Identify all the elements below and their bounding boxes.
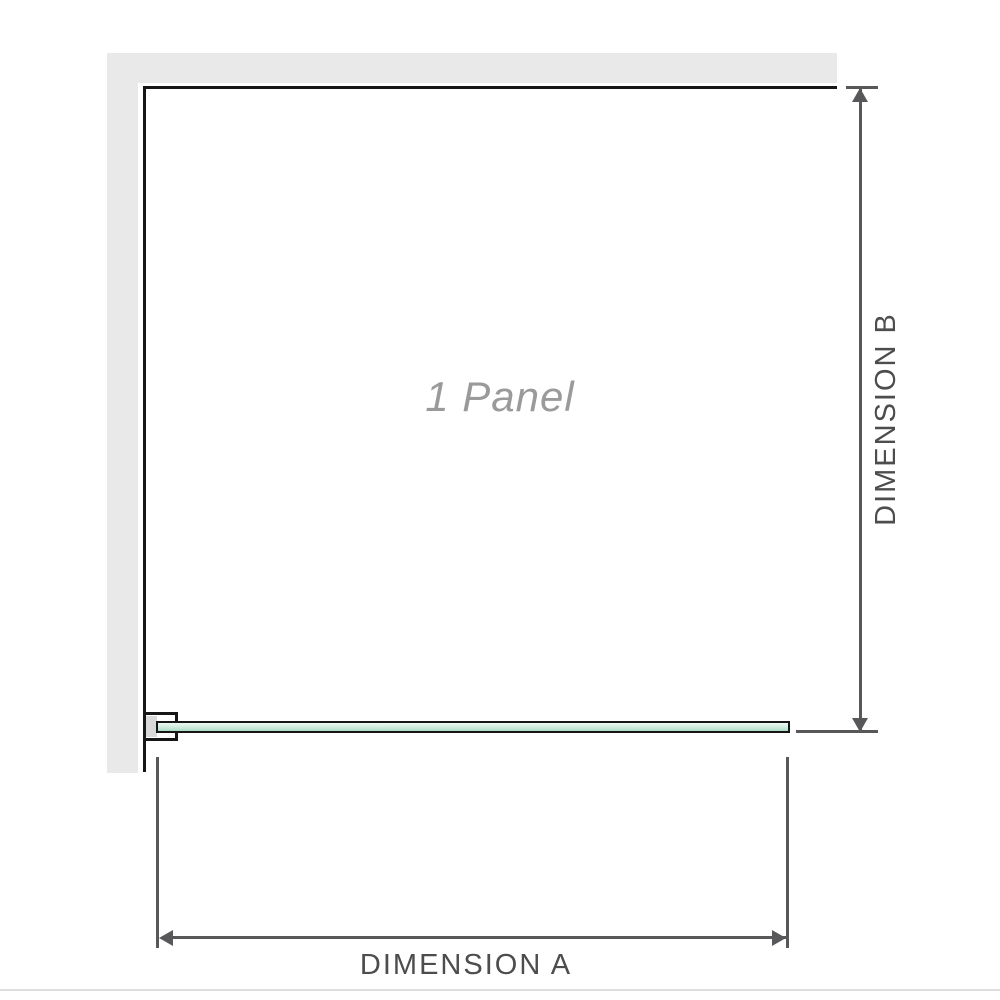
wall-left — [107, 53, 138, 773]
dimension-b-line — [859, 89, 862, 730]
arrow-left-icon — [159, 930, 173, 946]
panel-count-label: 1 Panel — [350, 371, 650, 423]
dimension-b-label: DIMENSION B — [870, 269, 902, 569]
panel-outline-top — [143, 86, 837, 89]
dimension-a-line — [162, 936, 786, 939]
wall-top — [107, 53, 837, 83]
dimension-a-label: DIMENSION A — [316, 948, 616, 982]
panel-outline-left — [143, 86, 146, 772]
bottom-divider — [0, 989, 1000, 991]
arrow-down-icon — [852, 718, 868, 732]
dimension-a-left-tick — [156, 757, 159, 948]
arrow-up-icon — [852, 88, 868, 102]
dimension-a-right-tick — [786, 757, 789, 948]
shower-panel-diagram: 1 Panel DIMENSION B DIMENSION A — [0, 0, 1000, 1000]
glass-panel — [156, 721, 790, 733]
arrow-right-icon — [772, 930, 786, 946]
